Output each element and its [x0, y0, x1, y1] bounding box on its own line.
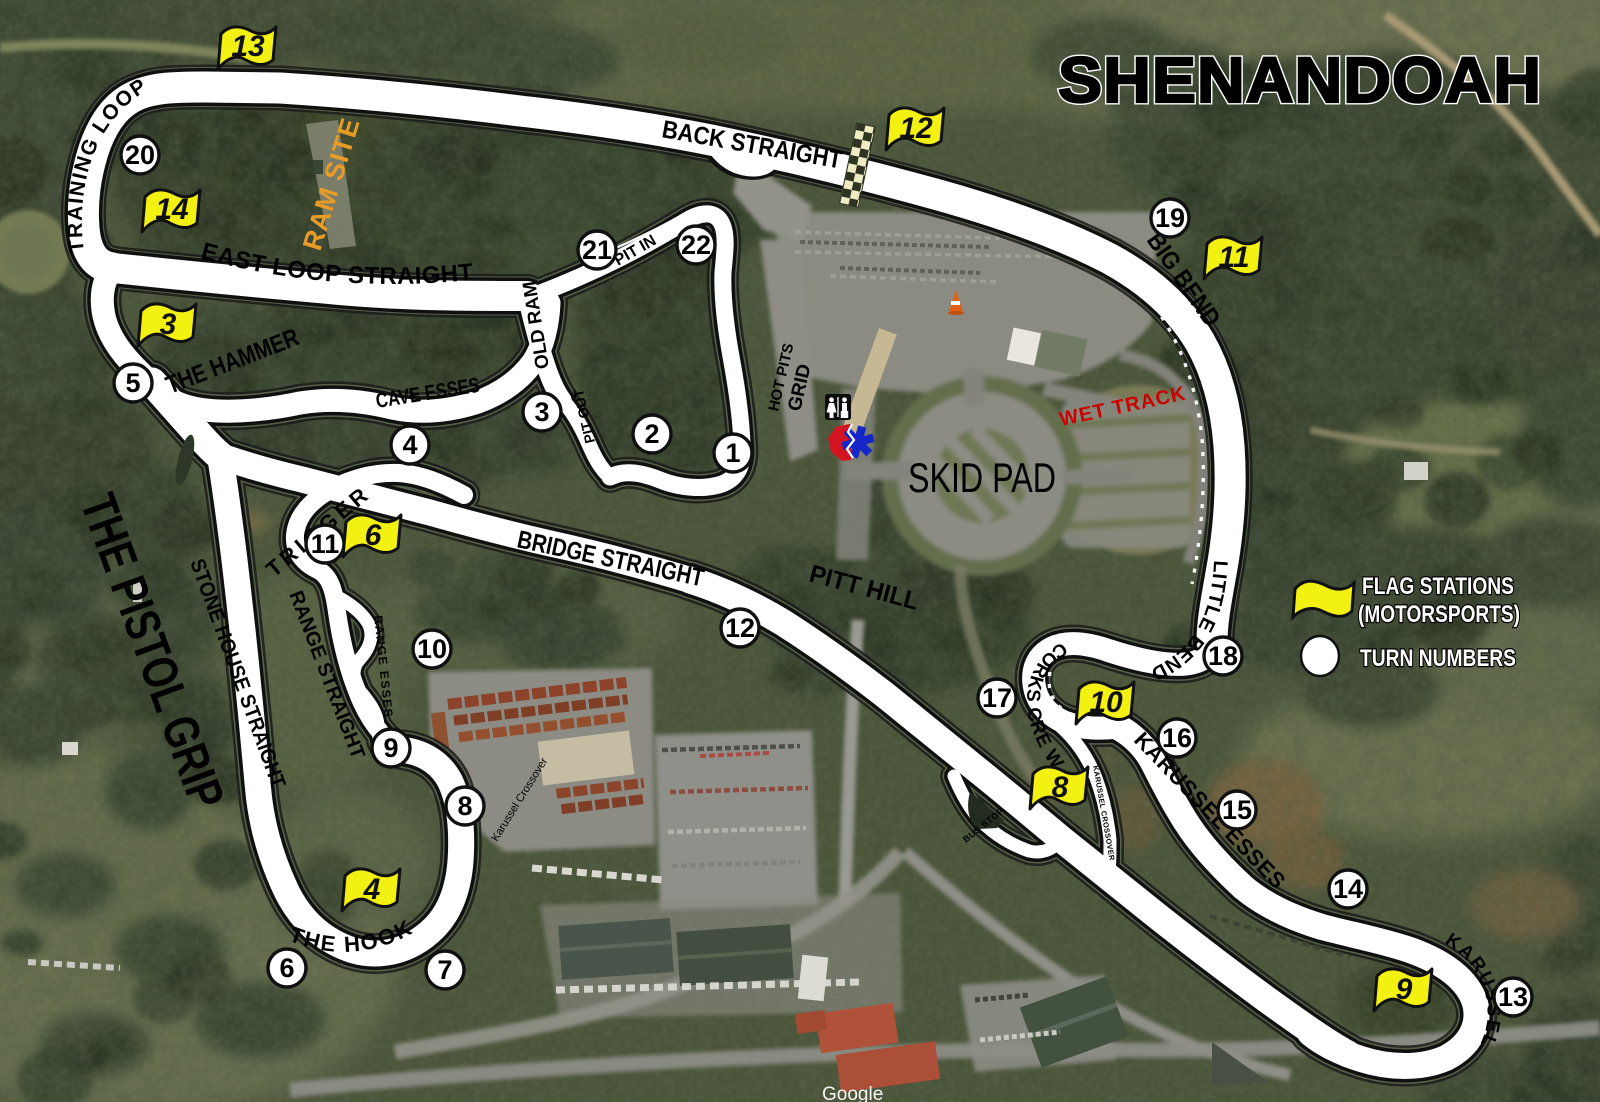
svg-text:7: 7	[437, 955, 452, 985]
svg-text:3: 3	[160, 308, 177, 341]
svg-text:10: 10	[1089, 686, 1123, 719]
svg-text:11: 11	[1218, 241, 1249, 274]
svg-text:6: 6	[365, 519, 382, 552]
svg-text:3: 3	[534, 397, 549, 427]
svg-text:(MOTORSPORTS): (MOTORSPORTS)	[1358, 601, 1520, 628]
svg-text:17: 17	[982, 683, 1012, 713]
svg-text:9: 9	[1396, 973, 1413, 1006]
svg-text:SKID PAD: SKID PAD	[908, 454, 1056, 501]
svg-text:15: 15	[1222, 795, 1252, 825]
svg-text:Google: Google	[822, 1084, 883, 1102]
svg-text:14: 14	[155, 193, 189, 226]
svg-text:4: 4	[402, 430, 417, 460]
svg-text:16: 16	[1162, 723, 1192, 753]
svg-text:14: 14	[1333, 874, 1363, 904]
svg-text:20: 20	[125, 140, 155, 170]
svg-text:2: 2	[644, 419, 659, 449]
svg-text:8: 8	[1052, 771, 1069, 804]
svg-text:21: 21	[582, 235, 612, 265]
svg-text:18: 18	[1208, 641, 1238, 671]
svg-text:5: 5	[125, 368, 140, 398]
svg-text:9: 9	[383, 733, 398, 763]
svg-text:12: 12	[899, 112, 933, 145]
svg-text:19: 19	[1155, 203, 1185, 233]
svg-text:FLAG STATIONS: FLAG STATIONS	[1362, 573, 1514, 600]
svg-text:10: 10	[417, 634, 447, 664]
svg-text:SHENANDOAH: SHENANDOAH	[1058, 44, 1542, 116]
svg-text:12: 12	[725, 613, 755, 643]
svg-text:6: 6	[279, 953, 294, 983]
svg-text:1: 1	[725, 438, 740, 468]
svg-text:4: 4	[363, 873, 381, 906]
svg-text:8: 8	[457, 791, 472, 821]
svg-text:13: 13	[1498, 982, 1528, 1012]
svg-text:TURN NUMBERS: TURN NUMBERS	[1360, 645, 1516, 672]
svg-text:11: 11	[311, 529, 340, 559]
svg-text:22: 22	[681, 230, 711, 260]
svg-text:13: 13	[231, 30, 265, 63]
